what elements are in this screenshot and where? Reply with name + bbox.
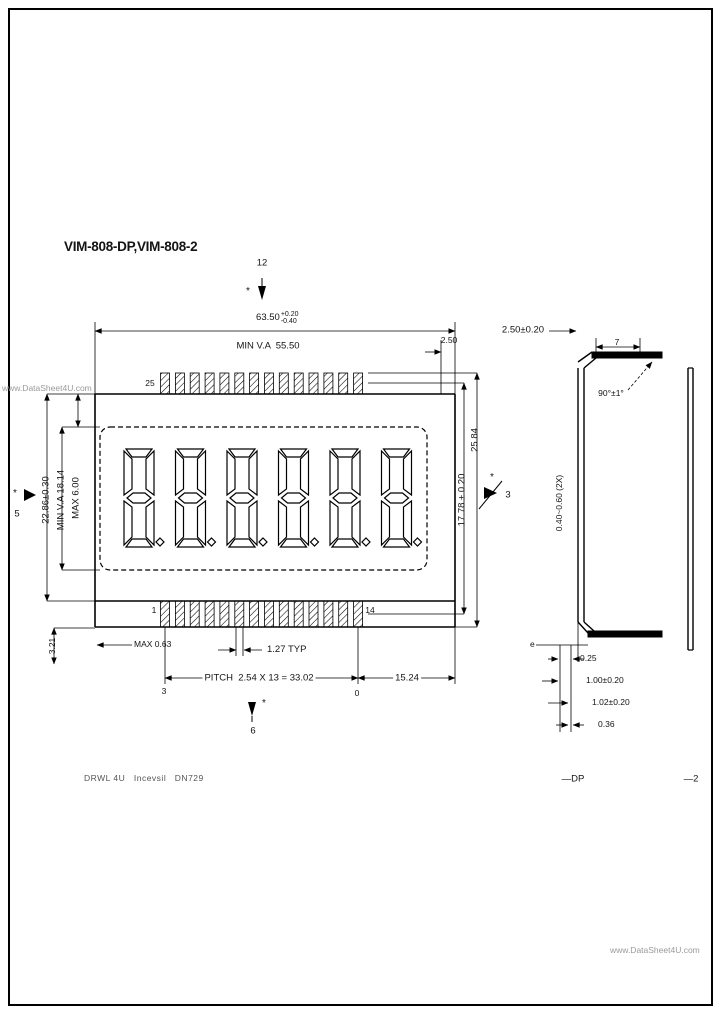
side-bottom-dim-3: 1.02±0.20 [592,698,630,707]
seven-segment-digits [124,449,422,547]
pin-thickness-dimension: 0.40~0.60 (2X) [555,475,564,531]
top-margin-dimension: MAX 6.00 [71,477,81,519]
glass-thickness-dimension: 2.50±0.20 [502,325,544,335]
pin-callout-bottom-star: * [262,699,266,709]
side-top-dimension: 7 [615,338,620,347]
pin-callout-right-number: 3 [505,490,510,500]
side-dimension-lines [536,331,652,732]
pin-number-bottom-left: 1 [152,606,157,615]
pin-pitch-dimension: PITCH 2.54 X 13 = 33.02 [202,673,315,683]
pin-callout-bottom-number: 6 [250,726,255,736]
viewing-area-width-dimension: MIN V.A 55.50 [236,341,299,351]
pin-callout-left-number: 5 [14,509,19,519]
corner-offset-dimension: 2.50 [441,336,458,345]
dimension-drawing [0,0,720,1012]
pin-callout-top-number: 12 [257,258,268,268]
pin-callout-left-star: * [13,489,17,499]
overall-height-dimension: 22.86±0.30 [41,476,51,523]
page-title: VIM-808-DP,VIM-808-2 [64,240,197,254]
viewing-area-height-dimension: MIN V.A 18.14 [56,470,66,530]
pin-number-bottom-right: 14 [365,606,374,615]
max-offset-dimension: MAX 0.63 [134,640,171,649]
left-callout-arrow-icon [24,489,36,501]
pin-number-top-left: 25 [145,379,154,388]
pin-row-spacing-dimension: 17.78 ± 0.20 [457,474,467,527]
bottom-pin-profile [588,631,662,637]
pin-length-dimension: 3.21 [48,638,57,655]
overall-with-pins-dimension: 25.84 [470,428,480,452]
datum-ref-a: 3 [162,687,167,696]
pin-width-dimension: 1.27 TYP [267,645,306,655]
baseline-label: e [530,640,535,649]
end-pitch-dimension: 15.24 [393,673,421,683]
overall-width-tol-minus: -0.40 [281,318,299,326]
pin-bend-angle-dimension: 90°±1° [598,389,624,398]
overall-width-tol-plus: +0.20 [281,310,299,318]
top-pin-profile [592,352,662,358]
datum-ref-b: 0 [355,689,360,698]
top-callout-arrow-icon [258,286,266,300]
bottom-pin-row [161,601,363,627]
side-bottom-dim-2: 1.00±0.20 [586,676,624,685]
side-view-2 [688,368,693,650]
overall-width-value: 63.50 [256,313,280,323]
side-bottom-dim-1: 0.25 [580,654,597,663]
overall-width-dimension: 63.50 +0.20 -0.40 [245,301,298,335]
watermark-bottom-right: www.DataSheet4U.com [610,946,700,955]
variant-label-2: —2 [684,774,699,784]
pin-callout-top-star: * [246,287,250,297]
datasheet-page: www.DataSheet4U.com www.DataSheet4U.com … [0,0,720,1012]
drawing-info-line: DRWL 4U Incevsil DN729 [84,774,204,783]
bottom-callout-arrow-icon [248,702,256,716]
front-dimension-lines [47,322,477,684]
watermark-top-left: www.DataSheet4U.com [2,384,92,393]
pin-callout-right-star: * [490,473,494,483]
variant-label-dp: —DP [562,774,585,784]
side-bottom-dim-4: 0.36 [598,720,615,729]
top-pin-row [161,373,363,394]
